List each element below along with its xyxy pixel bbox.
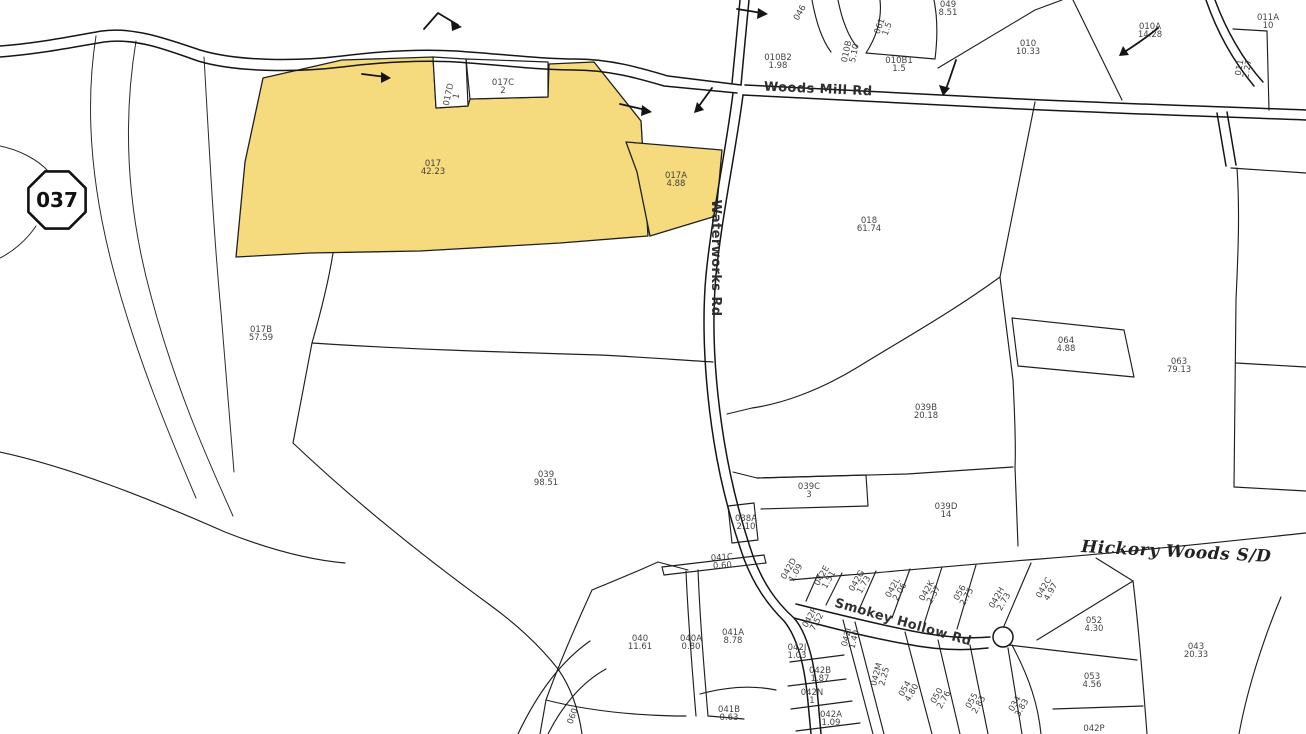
road-label-hickory-woods-s-d: Hickory Woods S/D xyxy=(1080,537,1272,567)
parcel-label-011[interactable]: 0112.27 xyxy=(1233,57,1254,79)
highlighted-parcels xyxy=(236,57,722,257)
parcel-label-042B[interactable]: 042B1.87 xyxy=(809,666,831,684)
parcel-label-053[interactable]: 0534.56 xyxy=(1083,672,1102,690)
parcel-label-010B[interactable]: 010B5.10 xyxy=(840,40,862,65)
parcel-map[interactable]: 037 01742.23017A4.88017C2017D1017B57.590… xyxy=(0,0,1306,734)
parcel-label-040[interactable]: 04011.61 xyxy=(628,634,652,652)
parcel-label-055[interactable]: 0552.83 xyxy=(963,690,988,715)
parcel-label-042A[interactable]: 042A1.09 xyxy=(820,710,842,728)
top-right-road-line xyxy=(1227,112,1236,165)
parcel-label-038A[interactable]: 038A2.10 xyxy=(735,514,757,532)
parcel-label-042P[interactable]: 042P xyxy=(1083,724,1104,734)
parcel-label-042K[interactable]: 042K2.37 xyxy=(917,579,944,607)
parcel-label-039B[interactable]: 039B20.18 xyxy=(914,403,938,421)
road-label-waterworks-rd: Waterworks Rd xyxy=(708,200,723,317)
parcel-label-041B[interactable]: 041B0.63 xyxy=(718,705,740,723)
parcel-label-042C[interactable]: 042C4.97 xyxy=(1034,576,1061,604)
parcel-label-042M[interactable]: 042M2.25 xyxy=(869,662,892,689)
parcel-label-041A[interactable]: 041A8.78 xyxy=(722,628,744,646)
parcel-label-052[interactable]: 0524.30 xyxy=(1085,616,1104,634)
parcel-label-039C[interactable]: 039C3 xyxy=(798,482,820,500)
parcel-label-017B[interactable]: 017B57.59 xyxy=(249,325,273,343)
cul-de-sac-bubble xyxy=(993,627,1013,647)
parcel-label-049[interactable]: 0498.51 xyxy=(939,0,958,18)
parcel-label-043[interactable]: 04320.33 xyxy=(1184,642,1208,660)
sheet-badge: 037 xyxy=(28,171,85,228)
flow-arrow xyxy=(946,60,956,89)
waterworks-rd-line xyxy=(741,0,749,85)
parcel-label-034[interactable]: 0343.83 xyxy=(1006,693,1031,718)
parcel-label-010B2[interactable]: 010B21.98 xyxy=(764,53,791,71)
parcel-label-010A[interactable]: 010A14.28 xyxy=(1138,22,1162,40)
parcel-label-060[interactable]: 060 xyxy=(566,707,581,726)
parcel-label-040A[interactable]: 040A0.80 xyxy=(680,634,702,652)
parcel-label-056[interactable]: 0562.75 xyxy=(951,582,976,607)
road-lines xyxy=(0,0,1306,734)
parcel-label-042J[interactable]: 042J1.03 xyxy=(788,643,807,661)
parcel-label-010B1[interactable]: 010B11.5 xyxy=(885,56,912,74)
parcel-label-064[interactable]: 0644.88 xyxy=(1057,336,1076,354)
parcel-label-061[interactable]: 0611.5 xyxy=(873,17,895,38)
parcel-label-017A[interactable]: 017A4.88 xyxy=(665,171,687,189)
parcel-label-046[interactable]: 046 xyxy=(792,3,809,22)
sheet-number: 037 xyxy=(36,188,78,212)
parcel-label-042I[interactable]: 042I1.40 xyxy=(840,627,862,650)
waterworks-rd-line xyxy=(732,0,740,83)
parcel-label-054[interactable]: 0544.80 xyxy=(896,678,921,703)
parcel-label-018[interactable]: 01861.74 xyxy=(857,216,881,234)
parcel-label-063[interactable]: 06379.13 xyxy=(1167,357,1191,375)
parcel-lines xyxy=(0,0,1306,734)
parcel-label-042H[interactable]: 042H2.73 xyxy=(987,586,1014,615)
parcel-label-039D[interactable]: 039D14 xyxy=(935,502,958,520)
parcel-label-039[interactable]: 03998.51 xyxy=(534,470,558,488)
parcel-label-042D[interactable]: 042D1.09 xyxy=(779,556,806,585)
parcel-label-010[interactable]: 01010.33 xyxy=(1016,39,1040,57)
parcel-label-042N[interactable]: 042N1 xyxy=(801,688,824,706)
top-right-road-line xyxy=(1217,113,1226,166)
parcel-label-041C[interactable]: 041C0.60 xyxy=(710,552,733,572)
parcel-label-011A[interactable]: 011A10 xyxy=(1257,13,1279,31)
